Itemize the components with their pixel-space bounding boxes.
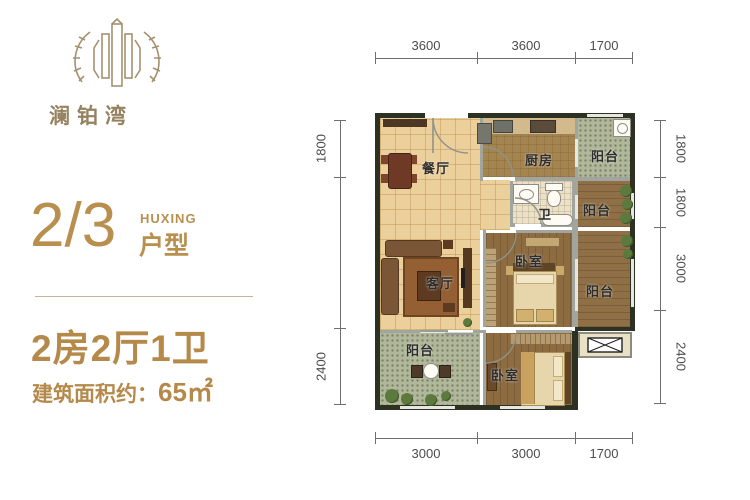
unit-number: 2/3: [30, 196, 116, 256]
dim-top-3: 1700: [578, 38, 630, 53]
area-text: 建筑面积约：65㎡: [32, 372, 213, 409]
dim-right-4: 2400: [674, 327, 689, 387]
label-balcony-mid: 阳台: [575, 200, 619, 219]
label-bedroom-second: 卧室: [483, 365, 527, 384]
brand-logo-emblem: [52, 18, 182, 98]
dim-top-1: 3600: [400, 38, 452, 53]
floor-plan: 餐厅 厨房 阳台 卫 阳台 客厅 卧室 阳台 阳台 卧室: [375, 113, 635, 410]
label-dining: 餐厅: [414, 158, 458, 177]
building-laurel-icon: [52, 18, 182, 98]
brand-name: 澜铂湾: [49, 100, 133, 130]
divider-line: [35, 296, 253, 297]
label-balcony-right: 阳台: [578, 281, 622, 300]
dim-top-2: 3600: [500, 38, 552, 53]
label-kitchen: 厨房: [517, 150, 561, 169]
dim-bottom-2: 3000: [500, 446, 552, 461]
layout-title: 2房2厅1卫: [31, 318, 210, 372]
label-balcony-top: 阳台: [583, 146, 627, 165]
dim-bottom-1: 3000: [400, 446, 452, 461]
dim-left-1: 1800: [314, 119, 329, 179]
dim-left-2: 2400: [314, 337, 329, 397]
label-living: 客厅: [418, 273, 462, 292]
unit-type-en: HUXING: [140, 211, 197, 226]
label-bedroom-main: 卧室: [507, 251, 551, 270]
dim-right-3: 3000: [674, 239, 689, 299]
dim-right-1: 1800: [674, 119, 689, 179]
unit-type-cn: 户型: [139, 226, 189, 262]
floorplan-page: 澜铂湾 2/3 HUXING 户型 2房2厅1卫 建筑面积约：65㎡ 3600 …: [0, 0, 750, 500]
area-label: 建筑面积约：: [32, 383, 158, 406]
dim-right-2: 1800: [674, 173, 689, 233]
label-balcony-bottom: 阳台: [398, 340, 442, 359]
dim-bottom-3: 1700: [578, 446, 630, 461]
area-value: 65㎡: [158, 377, 213, 407]
label-bath: 卫: [523, 204, 567, 223]
